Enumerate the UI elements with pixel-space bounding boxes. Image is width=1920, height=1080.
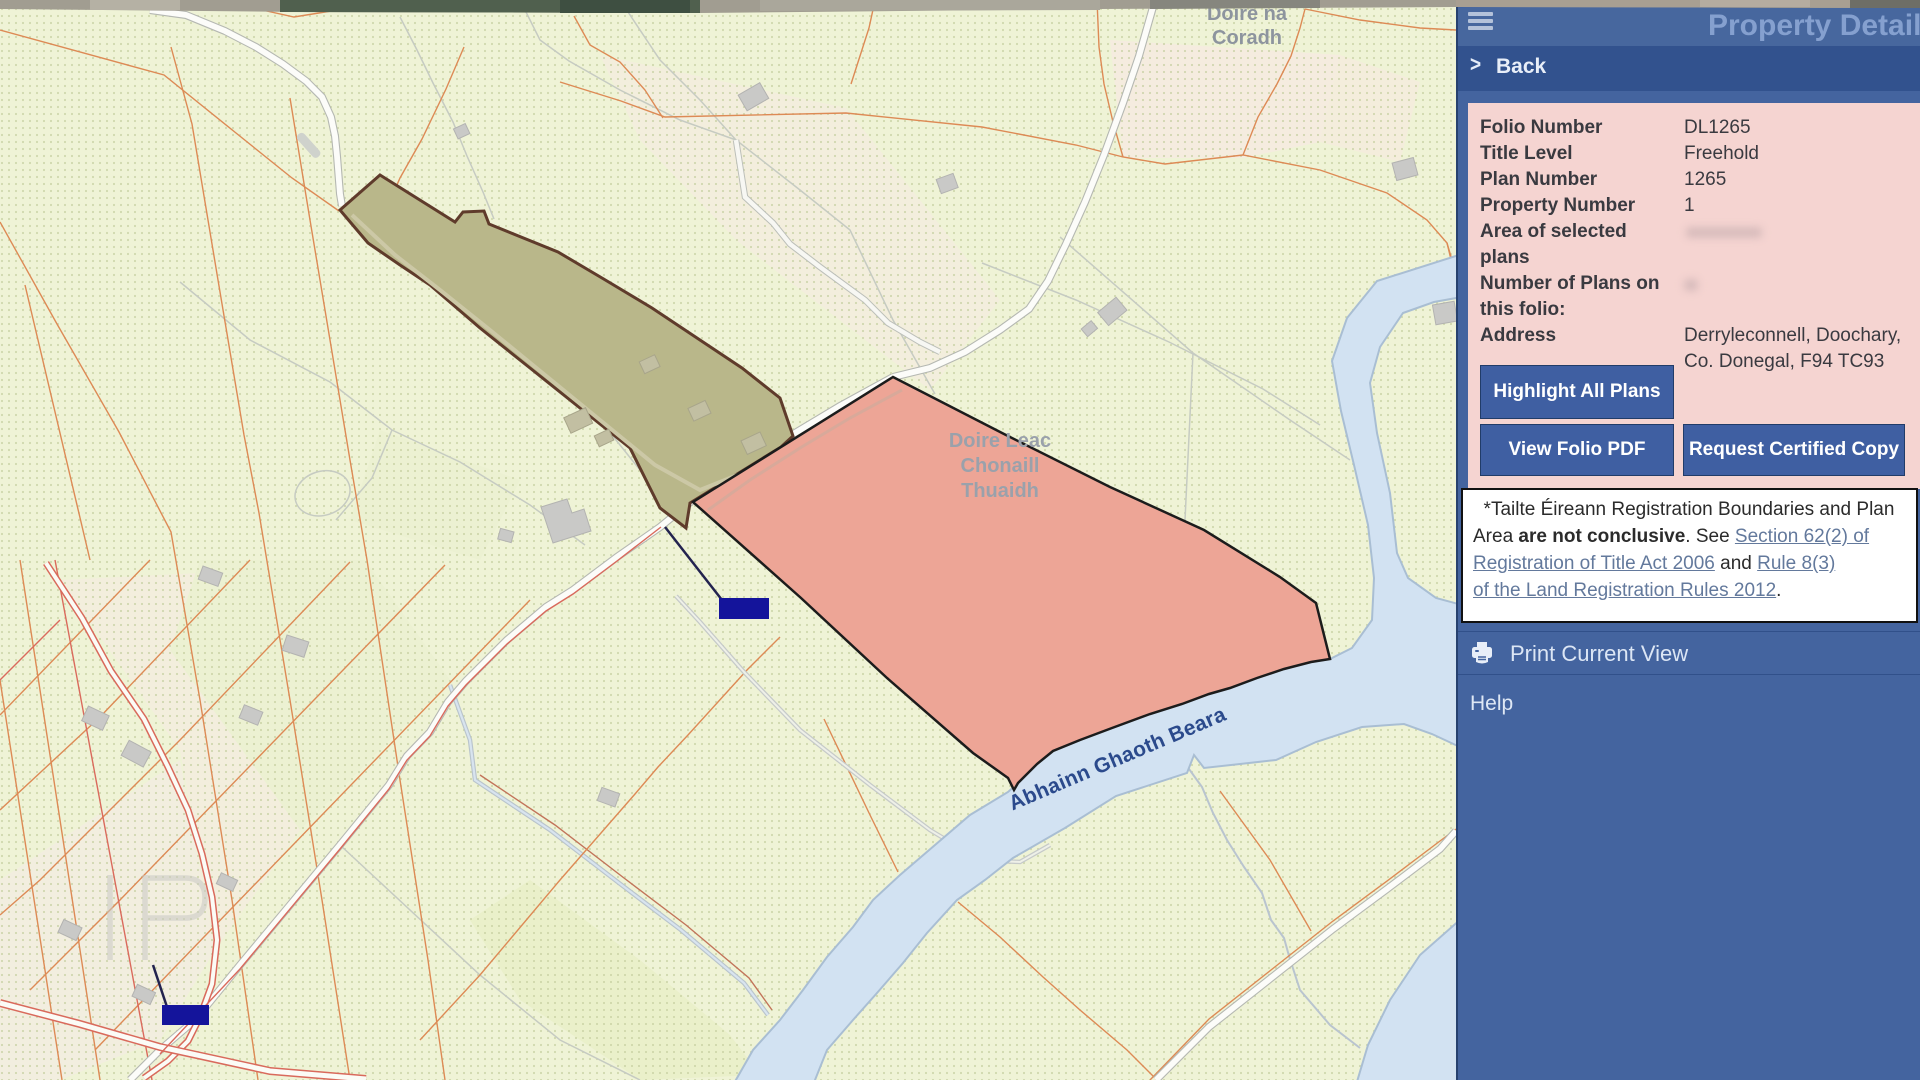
svg-text:Doire Leac: Doire Leac bbox=[949, 430, 1051, 452]
svg-text:Coradh: Coradh bbox=[1212, 27, 1282, 49]
svg-text:Chonaill: Chonaill bbox=[961, 455, 1040, 477]
svg-text:Thuaidh: Thuaidh bbox=[961, 480, 1039, 502]
